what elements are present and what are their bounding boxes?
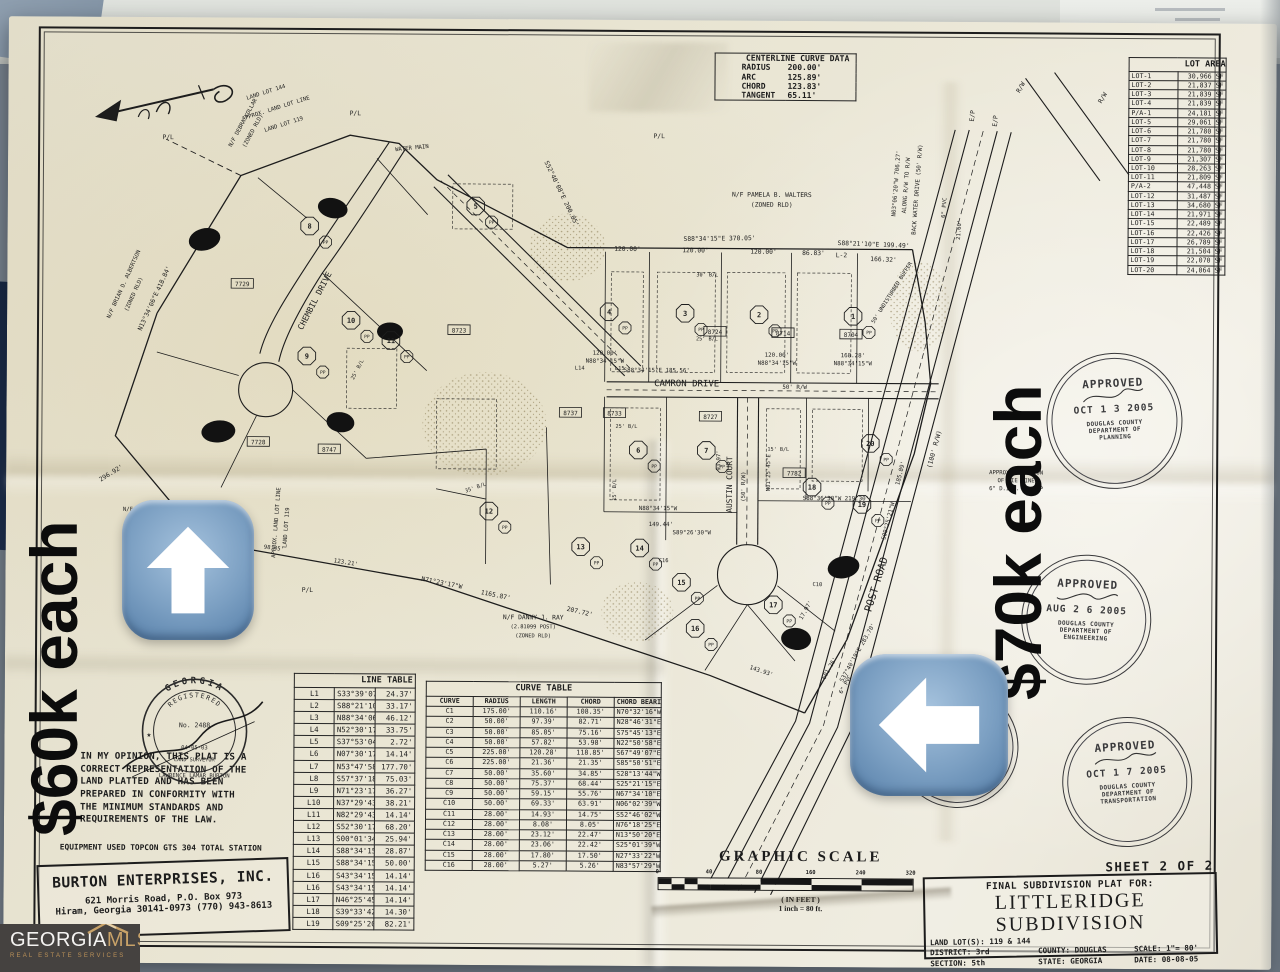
seal-name: LAWRENCE LAMAR BURTON: [159, 773, 230, 779]
stamp-signature: [1066, 384, 1161, 408]
stamp-date: OCT 1 3 2005: [1047, 401, 1181, 418]
stamp-org: DOUGLAS COUNTY: [1047, 417, 1181, 430]
title-block: FINAL SUBDIVISION PLAT FOR: LITTLERIDGE …: [923, 872, 1218, 959]
background-right-edge: [1260, 0, 1280, 972]
lot-area-table: LOT AREALOT-130,966 SFLOT-221,837 SFLOT-…: [1127, 57, 1226, 275]
stamp-division: TRANSPORTATION: [1064, 793, 1192, 808]
data-table: CURVE TABLECURVERADIUSLENGTHCHORDCHORD B…: [425, 681, 662, 872]
plat-paper: S52°40'08"E 200.05'S88°34'15"E 370.05'12…: [3, 16, 1277, 970]
section: SECTION: 5th: [930, 957, 1038, 969]
plat-date: DATE: 08-08-05: [1134, 953, 1218, 965]
scale-tick: 0: [656, 869, 659, 875]
plat-content: S52°40'08"E 200.05'S88°34'15"E 370.05'12…: [3, 16, 1277, 970]
data-table: LINE TABLEL1S33°39'07"W24.37'L2S88°21'10…: [292, 673, 416, 931]
up-arrow-icon: [122, 500, 254, 640]
centerline-curve-table: CENTERLINE CURVE DATARADIUS200.00'ARC125…: [714, 52, 856, 101]
price-annotation-right: $70k each: [980, 384, 1056, 700]
seal-state: GEORGIA: [163, 676, 226, 695]
stamp-title: APPROVED: [1045, 374, 1179, 393]
curve-table: CURVE TABLECURVERADIUSLENGTHCHORDCHORD B…: [425, 681, 662, 872]
seal-star: ★: [146, 730, 151, 739]
scale-tick: 240: [856, 870, 866, 876]
seal-registered: REGISTERED: [166, 691, 223, 709]
scale-tick: 80: [756, 870, 763, 876]
seal-title: LAND SURVEYOR: [174, 757, 216, 763]
data-table: CENTERLINE CURVE DATARADIUS200.00'ARC125…: [714, 52, 856, 101]
stamp-org: DOUGLAS COUNTY: [1063, 779, 1191, 794]
stamp-signature: [1080, 746, 1171, 772]
graphic-scale-bar: [658, 877, 914, 892]
line-table: LINE TABLEL1S33°39'07"W24.37'L2S88°21'10…: [292, 673, 416, 931]
stamp-division: PLANNING: [1048, 431, 1182, 444]
subdivision-name: LITTLERIDGE SUBDIVISION: [925, 888, 1216, 937]
stamp-dept: DEPARTMENT OF: [1064, 786, 1192, 801]
surveyor-seal: GEORGIA REGISTERED ★ No. 2488 04-05-03 L…: [104, 665, 295, 806]
graphic-scale: GRAPHIC SCALE 04080160240320 ( IN FEET )…: [655, 848, 945, 914]
scale-tick: 160: [806, 870, 816, 876]
stamp-date: OCT 1 7 2005: [1062, 763, 1190, 782]
graphic-scale-title: GRAPHIC SCALE: [656, 848, 946, 867]
logo-tagline: REAL ESTATE SERVICES: [10, 953, 132, 959]
price-annotation-left: $60k each: [16, 520, 92, 836]
data-table: LOT AREALOT-130,966 SFLOT-221,837 SFLOT-…: [1127, 57, 1226, 275]
svg-text:GEORGIA: GEORGIA: [163, 676, 226, 695]
scale-tick: 320: [906, 871, 916, 877]
roof-icon: [86, 924, 130, 934]
seal-number: No. 2488: [179, 721, 210, 729]
scale-tick: 40: [706, 869, 713, 875]
equipment-note: EQUIPMENT USED TOPCON GTS 304 TOTAL STAT…: [60, 842, 310, 853]
stamp-title: APPROVED: [1061, 736, 1190, 757]
svg-text:REGISTERED: REGISTERED: [166, 691, 223, 709]
graphic-scale-ratio: 1 inch = 80 ft.: [655, 903, 945, 914]
stamp-dept: DEPARTMENT OF: [1048, 424, 1182, 437]
firm-name: BURTON ENTERPRISES, INC.: [39, 868, 287, 892]
photo-scene: S52°40'08"E 200.05'S88°34'15"E 370.05'12…: [0, 0, 1280, 972]
georgia-mls-logo: GEORGIA MLS REAL ESTATE SERVICES: [0, 924, 140, 972]
state: STATE: GEORGIA: [1038, 955, 1134, 967]
left-arrow-icon: [850, 654, 1008, 796]
